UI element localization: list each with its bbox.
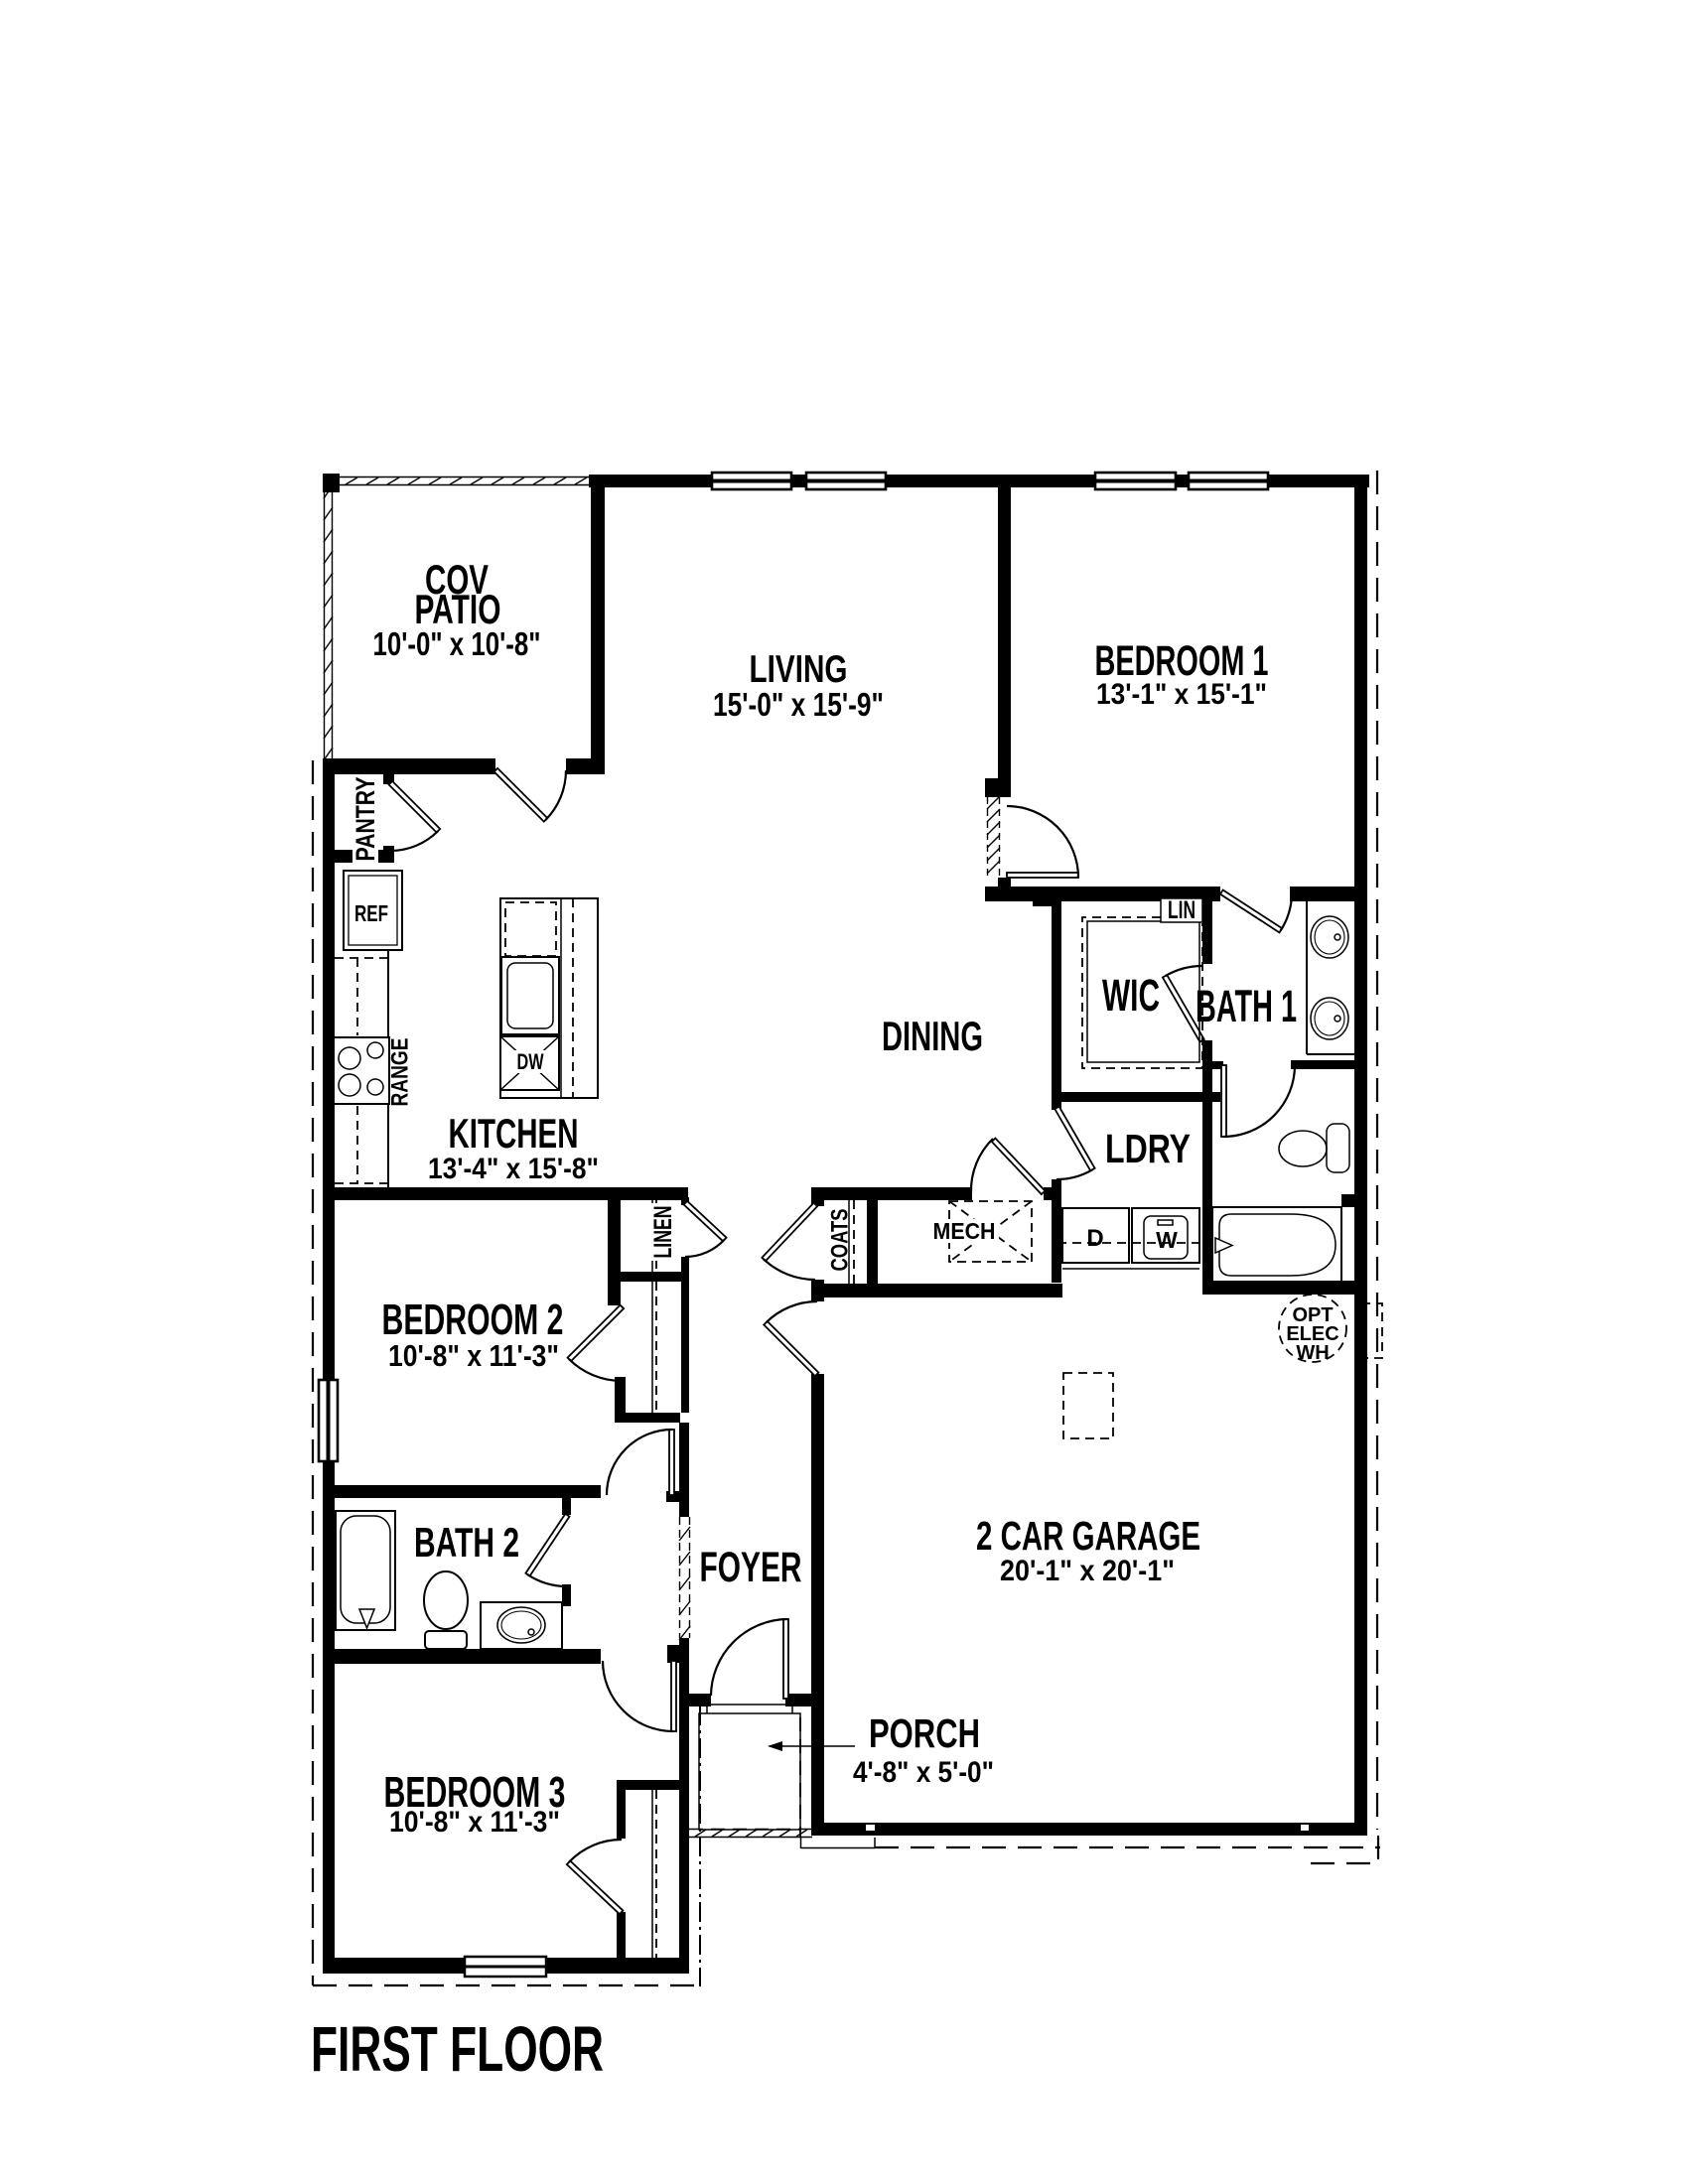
svg-text:DINING: DINING: [882, 1013, 983, 1059]
svg-text:KITCHEN: KITCHEN: [449, 1110, 579, 1157]
svg-text:REF: REF: [354, 900, 388, 926]
svg-text:BATH 1: BATH 1: [1196, 981, 1297, 1031]
svg-text:WIC: WIC: [1102, 970, 1160, 1021]
svg-text:LINEN: LINEN: [649, 1206, 677, 1259]
svg-text:BEDROOM 2: BEDROOM 2: [382, 1296, 564, 1344]
svg-text:PANTRY: PANTRY: [351, 777, 380, 862]
svg-text:LIVING: LIVING: [750, 648, 848, 691]
svg-text:RANGE: RANGE: [387, 1038, 414, 1107]
svg-text:WH: WH: [1296, 1342, 1329, 1364]
svg-text:10'-8" x 11'-3": 10'-8" x 11'-3": [389, 1806, 560, 1839]
svg-text:MECH: MECH: [933, 1218, 996, 1244]
svg-text:4'-8" x 5'-0": 4'-8" x 5'-0": [853, 1756, 994, 1789]
svg-text:13'-1" x 15'-1": 13'-1" x 15'-1": [1096, 678, 1267, 711]
svg-text:BATH 2: BATH 2: [414, 1519, 519, 1566]
svg-text:2 CAR GARAGE: 2 CAR GARAGE: [976, 1513, 1200, 1559]
svg-text:FOYER: FOYER: [700, 1544, 802, 1591]
svg-text:PORCH: PORCH: [869, 1710, 980, 1756]
svg-text:FIRST FLOOR: FIRST FLOOR: [311, 2013, 604, 2085]
svg-text:10'-8" x 11'-3": 10'-8" x 11'-3": [388, 1338, 559, 1373]
svg-text:DW: DW: [517, 1049, 544, 1074]
svg-text:COATS: COATS: [827, 1209, 854, 1272]
svg-text:13'-4" x 15'-8": 13'-4" x 15'-8": [428, 1153, 599, 1185]
svg-text:10'-0" x 10'-8": 10'-0" x 10'-8": [373, 625, 541, 662]
svg-text:D: D: [1086, 1225, 1103, 1252]
svg-text:15'-0" x 15'-9": 15'-0" x 15'-9": [713, 686, 884, 723]
svg-text:W: W: [1156, 1227, 1178, 1253]
svg-text:20'-1" x 20'-1": 20'-1" x 20'-1": [1000, 1555, 1175, 1587]
svg-text:LIN: LIN: [1168, 896, 1196, 924]
svg-text:LDRY: LDRY: [1105, 1126, 1191, 1171]
